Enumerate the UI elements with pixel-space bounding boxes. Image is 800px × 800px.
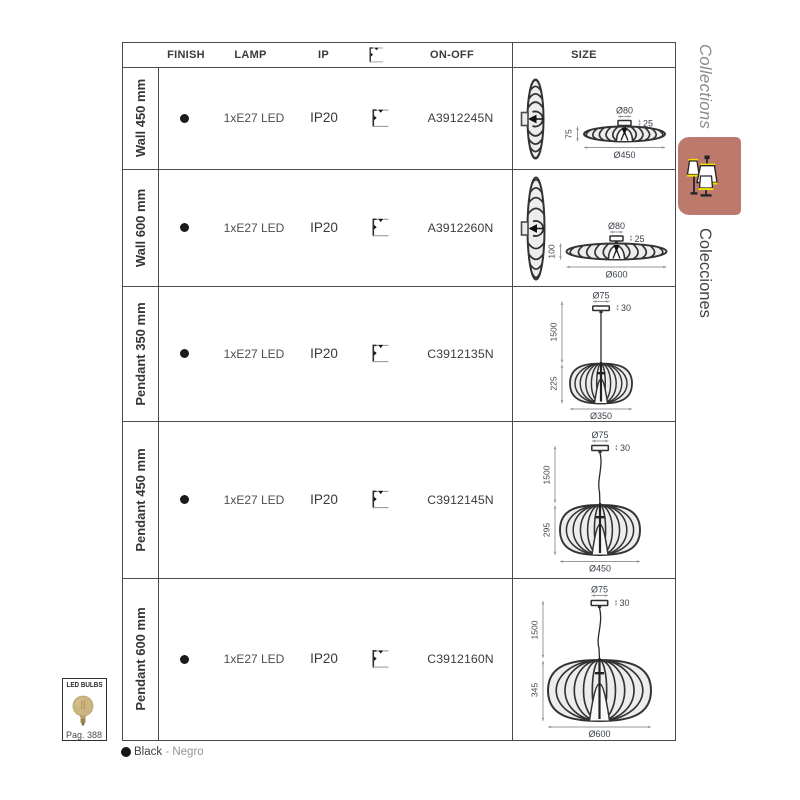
svg-text:295: 295 <box>542 523 552 537</box>
svg-text:1500: 1500 <box>530 620 540 639</box>
svg-text:1500: 1500 <box>542 465 552 484</box>
svg-text:Ø80: Ø80 <box>608 221 625 231</box>
svg-text:25: 25 <box>635 234 645 244</box>
svg-text:30: 30 <box>620 598 630 608</box>
svg-text:Ø75: Ø75 <box>591 585 608 595</box>
svg-text:Ø75: Ø75 <box>591 430 608 440</box>
svg-text:Ø600: Ø600 <box>588 729 610 739</box>
svg-text:Ø450: Ø450 <box>613 150 635 160</box>
svg-text:Ø80: Ø80 <box>616 106 633 116</box>
svg-text:75: 75 <box>564 129 574 139</box>
svg-text:225: 225 <box>549 376 559 390</box>
svg-text:Ø350: Ø350 <box>590 411 612 421</box>
svg-text:1500: 1500 <box>549 322 559 341</box>
svg-text:30: 30 <box>621 303 631 313</box>
svg-text:25: 25 <box>643 119 653 129</box>
svg-text:100: 100 <box>547 244 557 258</box>
svg-text:Ø75: Ø75 <box>592 291 609 301</box>
svg-text:Ø600: Ø600 <box>605 270 627 280</box>
svg-text:Ø450: Ø450 <box>589 564 611 574</box>
svg-text:345: 345 <box>530 683 540 697</box>
svg-text:30: 30 <box>620 443 630 453</box>
